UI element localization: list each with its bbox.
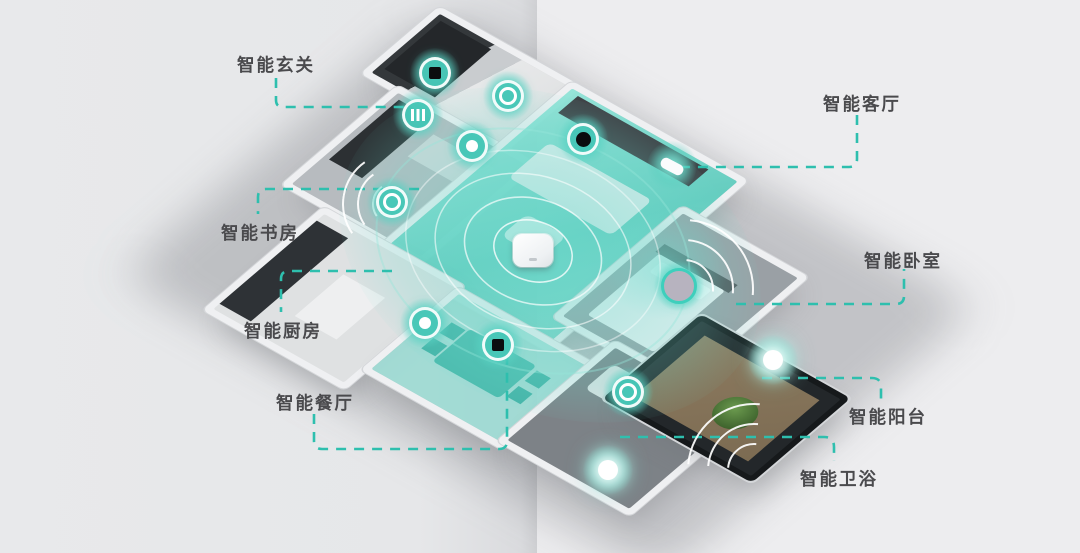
dining-chair — [507, 386, 533, 404]
screen-panel-icon — [492, 339, 504, 351]
label-study: 智能书房 — [221, 220, 299, 245]
dot-sensor-icon — [466, 140, 478, 152]
glow-light-icon — [598, 460, 618, 480]
dining-chair — [525, 370, 551, 388]
device-ring — [567, 123, 599, 155]
dining-control-panel-device[interactable] — [473, 320, 523, 370]
bathroom-light-device[interactable] — [583, 445, 633, 495]
living-wall-switch-device[interactable] — [647, 141, 697, 191]
device-ring — [456, 130, 488, 162]
label-bedroom: 智能卧室 — [864, 248, 942, 273]
hallway-sensor-device[interactable] — [447, 121, 497, 171]
label-entrance: 智能玄关 — [237, 52, 315, 77]
kitchen-sensor-device[interactable] — [400, 298, 450, 348]
device-ring — [419, 57, 451, 89]
device-ring — [409, 307, 441, 339]
screen-panel-icon — [429, 67, 441, 79]
gateway-hub-icon[interactable] — [513, 234, 553, 267]
smart-home-diagram: 智能玄关 智能客厅 智能书房 智能厨房 智能卧室 智能餐厅 智能阳台 智能卫浴 — [0, 0, 1080, 553]
entrance-radiator-device[interactable] — [393, 90, 443, 140]
device-ring — [402, 99, 434, 131]
label-balcony: 智能阳台 — [849, 404, 927, 429]
ring-speaker-icon — [619, 383, 637, 401]
device-ring — [612, 376, 644, 408]
ring-speaker-icon — [383, 193, 401, 211]
label-kitchen: 智能厨房 — [244, 318, 322, 343]
balcony-light-device[interactable] — [748, 335, 798, 385]
label-bathroom: 智能卫浴 — [800, 466, 878, 491]
label-dining: 智能餐厅 — [276, 390, 354, 415]
label-living: 智能客厅 — [823, 91, 901, 116]
study-speaker-device[interactable] — [367, 177, 417, 227]
bathroom-speaker-device[interactable] — [603, 367, 653, 417]
dot-sensor-icon — [419, 317, 431, 329]
ring-speaker-icon — [499, 87, 517, 105]
living-camera-device[interactable] — [558, 114, 608, 164]
bedroom-sensor-device[interactable] — [654, 261, 704, 311]
device-ring — [492, 80, 524, 112]
camera-lens-icon — [576, 132, 591, 147]
disc-sensor-icon — [661, 268, 697, 304]
device-ring — [376, 186, 408, 218]
glow-light-icon — [763, 350, 783, 370]
radiator-icon — [411, 109, 425, 121]
device-ring — [482, 329, 514, 361]
wall-switch-icon — [659, 156, 685, 177]
entrance-speaker-device[interactable] — [483, 71, 533, 121]
